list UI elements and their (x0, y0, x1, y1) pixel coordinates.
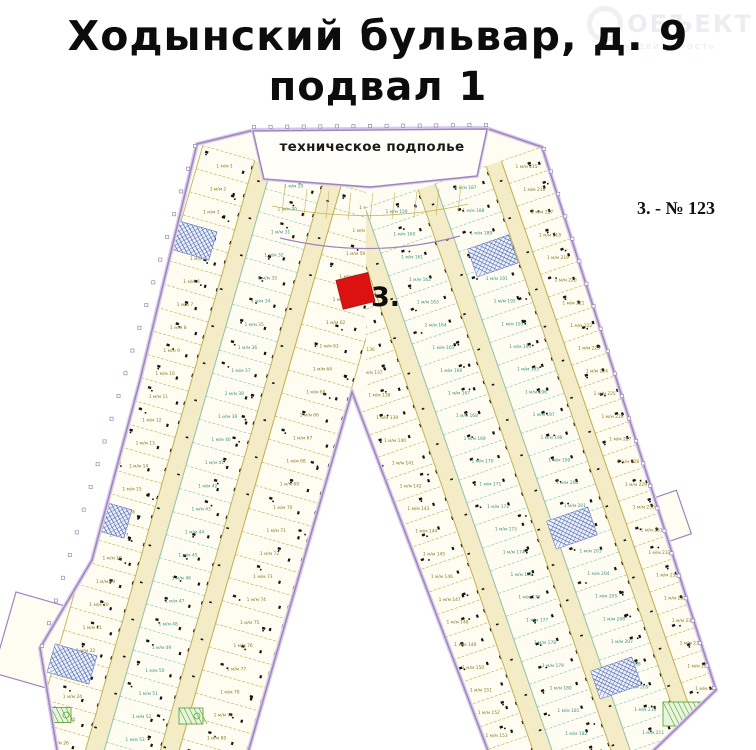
stall-label: 1 м/м 181 (557, 708, 579, 714)
stall-label: 1 м/м 233 (656, 573, 678, 579)
stall-label: 1 м/м 80 (207, 735, 226, 741)
stall-label: 1 м/м 14 (129, 463, 148, 469)
stall-label: 1 м/м 69 (280, 482, 299, 488)
stall-label: 1 м/м 38 (225, 391, 244, 397)
stall-label: 1 м/м 217 (531, 210, 553, 216)
stall-label: 1 м/м 168 (456, 413, 478, 419)
stall-label: 1 м/м 33 (258, 276, 277, 282)
stall-label: 1 м/м 218 (539, 232, 561, 238)
stall-label: 1 м/м 210 (634, 707, 656, 713)
stall-label: 1 м/м 166 (440, 368, 462, 374)
stall-label: 1 м/м 163 (417, 300, 439, 306)
stall-label: 1 м/м 152 (478, 710, 500, 716)
stall-label: 1 м/м 196 (525, 389, 547, 395)
stall-label: 1 м/м 165 (432, 345, 454, 351)
stall-label: 1 м/м 62 (326, 320, 345, 326)
stall-label: 1 м/м 6 (183, 279, 200, 285)
stall-label: 1 м/м 50 (145, 668, 164, 674)
stall-label: 1 м/м 192 (494, 299, 516, 305)
stall-label: 1 м/м 173 (495, 527, 517, 533)
stall-label: 1 м/м 31 (271, 230, 290, 236)
stall-label: 1 м/м 235 (672, 618, 694, 624)
stall-label: 1 м/м 26 (50, 740, 69, 746)
stall-label: 1 м/м 20 (89, 602, 108, 608)
technical-underfloor-zone (253, 129, 487, 187)
stall-label: 1 м/м 170 (471, 459, 493, 465)
stall-label: 1 м/м 194 (509, 344, 531, 350)
greenery-icon (51, 708, 74, 723)
stall-label: 1 м/м 195 (517, 367, 539, 373)
stall-label: 1 м/м 203 (580, 548, 602, 554)
stall-label: 1 м/м 47 (165, 599, 184, 605)
stall-label: 1 м/м 180 (550, 685, 572, 691)
stall-label: 1 м/м 175 (511, 572, 533, 578)
stall-label: 1 м/м 176 (518, 595, 540, 601)
stall-label: 1 м/м 78 (220, 689, 239, 695)
stall-label: 1 м/м 150 (462, 665, 484, 671)
stall-label: 1 м/м 29 (284, 183, 303, 189)
stall-label: 1 м/м 41 (205, 460, 224, 466)
stall-label: 1 м/м 79 (214, 712, 233, 718)
stall-label: 1 м/м 174 (503, 549, 525, 555)
stall-label: 1 м/м 53 (125, 737, 144, 743)
stall-label: 1 м/м 21 (83, 625, 102, 631)
stall-label: 1 м/м 169 (464, 436, 486, 442)
stall-label: 1 м/м 52 (132, 714, 151, 720)
stall-label: 1 м/м 178 (534, 640, 556, 646)
stall-label: 1 м/м 219 (547, 255, 569, 261)
stall-label: 1 м/м 240 (711, 731, 733, 737)
stall-label: 1 м/м 171 (479, 481, 501, 487)
page-title-line1: Ходынский бульвар, д. 9 (0, 12, 756, 60)
stall-label: 1 м/м 227 (609, 436, 631, 442)
stall-label: 1 м/м 64 (313, 366, 332, 372)
stall-label: 1 м/м 207 (611, 639, 633, 645)
stall-label: 1 м/м 206 (603, 616, 625, 622)
stall-label: 1 м/м 182 (565, 731, 587, 737)
stall-label: 1 м/м 142 (400, 483, 422, 489)
stall-label: 1 м/м 141 (392, 461, 414, 467)
stall-label: 1 м/м 10 (155, 371, 174, 377)
stall-label: 1 м/м 2 (210, 187, 227, 193)
stall-label: 1 м/м 197 (533, 412, 555, 418)
stall-label: 1 м/м 36 (238, 345, 257, 351)
legend-annotation: 3. - № 123 (596, 198, 756, 219)
stall-label: 1 м/м 1 (216, 164, 233, 170)
stall-label: 1 м/м 67 (293, 436, 312, 442)
stall-label: 1 м/м 15 (122, 486, 141, 492)
stall-label: 1 м/м 225 (594, 391, 616, 397)
stall-label: 1 м/м 3 (203, 210, 220, 216)
stall-label: 1 м/м 232 (648, 550, 670, 556)
stall-label: 1 м/м 179 (542, 663, 564, 669)
stall-label: 1 м/м 44 (185, 529, 204, 535)
stall-label: 1 м/м 39 (218, 414, 237, 420)
stall-label: 1 м/м 220 (555, 278, 577, 284)
stall-label: 1 м/м 224 (586, 368, 608, 374)
stall-label: 1 м/м 138 (368, 393, 390, 399)
selected-unit-number: 3. (371, 282, 400, 313)
stall-label: 1 м/м 193 (501, 321, 523, 327)
stall-label: 1 м/м 231 (641, 527, 663, 533)
floor-plan: 1 м/м 11 м/м 21 м/м 31 м/м 41 м/м 51 м/м… (0, 0, 756, 750)
stall-label: 1 м/м 42 (198, 483, 217, 489)
stall-label: 1 м/м 74 (247, 597, 266, 603)
stall-label: 1 м/м 35 (244, 322, 263, 328)
stall-label: 1 м/м 216 (523, 187, 545, 193)
stall-label: 1 м/м 19 (96, 579, 115, 585)
stall-label: 1 м/м 66 (300, 412, 319, 418)
stall-label: 1 м/м 24 (63, 694, 82, 700)
stall-label: 1 м/м 188 (462, 208, 484, 214)
stall-label: 1 м/м 189 (470, 231, 492, 237)
stall-label: 1 м/м 145 (423, 551, 445, 557)
stall-label: 1 м/м 215 (516, 164, 538, 170)
stall-label: 1 м/м 49 (152, 645, 171, 651)
zone-label: техническое подполье (280, 139, 465, 155)
stall-label: 1 м/м 13 (136, 440, 155, 446)
stall-label: 1 м/м 198 (540, 435, 562, 441)
stall-label: 1 м/м 164 (425, 322, 447, 328)
stall-label: 1 м/м 32 (264, 253, 283, 259)
stall-label: 1 м/м 65 (306, 389, 325, 395)
stall-label: 1 м/м 143 (407, 506, 429, 512)
stall-label: 1 м/м 199 (548, 457, 570, 463)
stall-label: 1 м/м 43 (192, 506, 211, 512)
stall-label: 1 м/м 211 (642, 730, 664, 736)
stall-label: 1 м/м 48 (158, 622, 177, 628)
stall-label: 1 м/м 222 (570, 323, 592, 329)
stall-label: 1 м/м 172 (487, 504, 509, 510)
stall-label: 1 м/м 201 (564, 503, 586, 509)
stall-label: 1 м/м 226 (601, 414, 623, 420)
stall-label: 1 м/м 76 (233, 643, 252, 649)
stall-label: 1 м/м 9 (163, 348, 180, 354)
stall-label: 1 м/м 161 (401, 254, 423, 260)
stall-label: 1 м/м 230 (633, 505, 655, 511)
stall-label: 1 м/м 146 (431, 574, 453, 580)
stall-label: 1 м/м 7 (177, 302, 194, 308)
stall-label: 1 м/м 167 (448, 390, 470, 396)
stall-label: 1 м/м 18 (102, 556, 121, 562)
greenery-icon (179, 708, 207, 724)
stall-label: 1 м/м 71 (267, 528, 286, 534)
stall-label: 1 м/м 77 (227, 666, 246, 672)
stall-label: 1 м/м 68 (286, 459, 305, 465)
page: { "header": { "title_line1": "Ходынский … (0, 0, 756, 750)
stall-label: 1 м/м 149 (454, 642, 476, 648)
stall-label: 1 м/м 205 (595, 594, 617, 600)
stall-label: 1 м/м 160 (393, 232, 415, 238)
page-title-line2: подвал 1 (0, 64, 756, 110)
stall-label: 1 м/м 177 (526, 617, 548, 623)
stall-label: 1 м/м 239 (703, 709, 725, 715)
stall-label: 1 м/м 147 (439, 597, 461, 603)
stall-label: 1 м/м 34 (251, 299, 270, 305)
stall-label: 1 м/м 234 (664, 595, 686, 601)
stall-label: 1 м/м 229 (625, 482, 647, 488)
stall-label: 1 м/м 63 (319, 343, 338, 349)
stall-label: 1 м/м 70 (273, 505, 292, 511)
stall-label: 1 м/м 12 (142, 417, 161, 423)
stall-label: 1 м/м 191 (486, 276, 508, 282)
stall-label: 1 м/м 221 (562, 300, 584, 306)
stall-label: 1 м/м 45 (178, 552, 197, 558)
stall-label: 1 м/м 153 (486, 733, 508, 739)
stall-label: 1 м/м 139 (376, 415, 398, 421)
stall-label: 1 м/м 144 (415, 529, 437, 535)
stall-label: 1 м/м 11 (149, 394, 168, 400)
stall-label: 1 м/м 204 (587, 571, 609, 577)
plan-interior: 1 м/м 11 м/м 21 м/м 31 м/м 41 м/м 51 м/м… (19, 128, 756, 750)
stall-label: 1 м/м 228 (617, 459, 639, 465)
stall-label: 1 м/м 151 (470, 688, 492, 694)
stall-label: 1 м/м 8 (170, 325, 187, 331)
stall-label: 1 м/м 40 (211, 437, 230, 443)
stall-label: 1 м/м 51 (139, 691, 158, 697)
stall-label: 1 м/м 200 (556, 480, 578, 486)
stall-label: 1 м/м 75 (240, 620, 259, 626)
stall-label: 1 м/м 46 (172, 576, 191, 582)
stall-label: 1 м/м 162 (409, 277, 431, 283)
stall-label: 1 м/м 73 (253, 574, 272, 580)
stall-label: 1 м/м 187 (455, 185, 477, 191)
stall-label: 1 м/м 223 (578, 346, 600, 352)
stall-label: 1 м/м 140 (384, 438, 406, 444)
stall-label: 1 м/м 59 (346, 251, 365, 257)
stall-label: 1 м/м 37 (231, 368, 250, 374)
stall-label: 1 м/м 148 (446, 619, 468, 625)
stall-label: 1 м/м 72 (260, 551, 279, 557)
